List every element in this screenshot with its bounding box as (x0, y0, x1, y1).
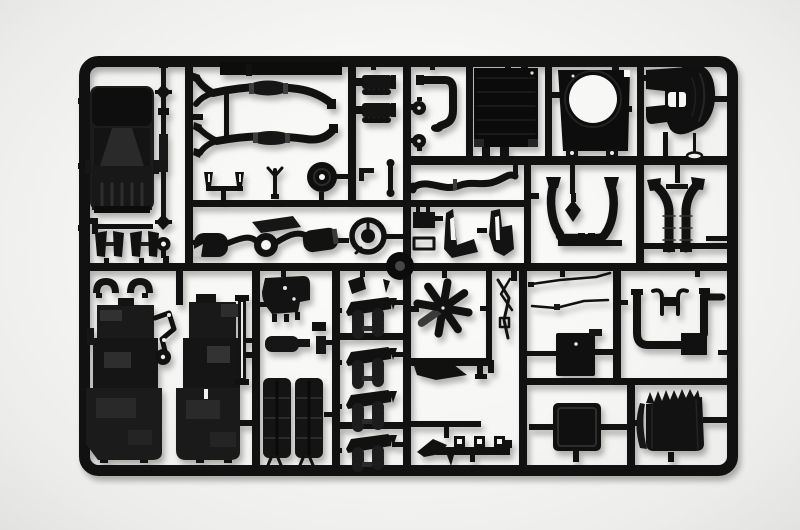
dogbone-end (387, 159, 395, 167)
hub-flange-lug (410, 105, 415, 110)
air-cleaner-horn (637, 403, 648, 449)
sprue-bar-v1 (185, 66, 193, 268)
part-dogbone-link (388, 164, 393, 192)
sprue-bar-v9 (252, 271, 260, 467)
muffler-pipe (228, 238, 255, 243)
part-small-block (312, 322, 326, 331)
stub (706, 236, 727, 241)
stack-cap (663, 246, 675, 252)
link-rod-foot (271, 194, 279, 199)
part-pipe-stub (488, 360, 494, 373)
cab-tab (153, 160, 159, 174)
stub (176, 271, 183, 305)
stub (193, 114, 203, 120)
part-linkage-rod (532, 273, 610, 284)
muffler-band (253, 133, 258, 143)
wedge-connector (105, 242, 114, 246)
sprue-runner-rail (411, 421, 481, 427)
stack-left-flare (647, 178, 661, 191)
stub (500, 147, 509, 158)
engine-cover-slot-divider (676, 92, 679, 107)
stub (79, 348, 87, 354)
stub (139, 258, 144, 264)
snake-pipe-clamp (453, 179, 457, 190)
stub (435, 216, 443, 221)
sprue-runner-a1 (340, 333, 403, 340)
part-mount-wedge (113, 231, 124, 257)
engine-mount-conn (362, 462, 372, 467)
stub (531, 193, 539, 199)
spearhead-stem (571, 193, 576, 202)
part-spearhead (565, 200, 581, 222)
sprue-group (78, 60, 733, 471)
thin-strip-cap (235, 379, 249, 385)
stub (573, 451, 579, 462)
engine-mount-conn (362, 419, 372, 424)
driveshaft-mid (159, 134, 168, 172)
compressor-pin (272, 314, 277, 322)
hub-flange-lug (410, 138, 415, 143)
stub (336, 448, 342, 453)
stub (552, 92, 560, 98)
part-t-fitting (664, 297, 676, 306)
exhaust1-flange (327, 99, 336, 109)
sprue-bar-v8 (636, 165, 644, 268)
finned-cylinder-nub (355, 106, 363, 114)
engine-detail (100, 310, 122, 321)
stub (371, 62, 376, 70)
wedge-connector (140, 242, 149, 246)
part-spring-clip (93, 278, 119, 293)
stub (601, 424, 627, 430)
photo-canvas (0, 0, 800, 530)
hook-rail-tooth-hole (477, 439, 482, 444)
exhaust1-fork-low (196, 93, 213, 104)
stub (336, 404, 342, 409)
engine-detail (186, 400, 220, 419)
stack-bridge (666, 184, 688, 189)
compressor-pin (284, 314, 289, 322)
stub (246, 338, 252, 343)
part-step-bracket (489, 209, 514, 256)
sprue-bar-v3 (348, 66, 356, 207)
part-air-cleaner (646, 397, 704, 451)
exhaust-runner (224, 92, 229, 138)
sprue-bar-h6 (519, 378, 732, 385)
sprue-bar-v11 (486, 271, 492, 360)
stub (324, 412, 332, 417)
finned-cylinder-nub (355, 78, 363, 86)
wheel-rim-hub (361, 229, 375, 243)
stub (338, 238, 349, 243)
wedge-runner (95, 224, 153, 229)
part-spike-small (383, 279, 390, 293)
muffler-band (249, 83, 254, 94)
part-radiator (474, 68, 538, 147)
part-coolant-hose (423, 80, 453, 126)
stub (570, 165, 575, 194)
coolant-hose-tip (431, 124, 443, 132)
part-step-bracket (444, 209, 478, 258)
engine-cover-pin (693, 133, 696, 153)
pipe-stub-foot (475, 374, 487, 379)
fan-blade (444, 282, 448, 303)
t-fitting-pin (660, 299, 664, 303)
engine-detail (207, 346, 230, 363)
part-mount-wedge (148, 231, 159, 257)
stub (336, 360, 342, 365)
stub (621, 300, 628, 305)
stub (407, 184, 414, 189)
part-fuel-tank (553, 403, 601, 451)
stub (513, 165, 518, 175)
valve-box-pin (416, 206, 420, 212)
stub (529, 424, 553, 430)
stub (612, 60, 619, 70)
stub (104, 258, 109, 264)
part-truck-cab-roof (92, 88, 152, 126)
engine-lug (87, 328, 94, 345)
part-heater-connector-box (681, 333, 707, 355)
part-linkage-rod (532, 300, 608, 308)
sprue-bar-v12 (519, 271, 527, 467)
sprue-bar-h1 (403, 156, 733, 165)
engine-mount-conn (362, 326, 372, 331)
hub-flange-lug (417, 97, 422, 101)
stub (675, 165, 680, 183)
stub (714, 96, 728, 102)
thin-strip-slot (241, 302, 243, 378)
stub (668, 452, 674, 462)
engine-detail (104, 352, 131, 368)
hub-flange-dot (417, 106, 421, 110)
stub (240, 420, 252, 426)
part-wishbone (206, 186, 243, 191)
sprue-bar-v5 (545, 66, 552, 161)
radiator-pinhole (530, 71, 533, 74)
part-small-bracket (92, 218, 98, 234)
stub (663, 132, 668, 160)
bellcrank-hole (167, 313, 171, 317)
radiator-corner (528, 139, 538, 147)
damper-hole (319, 174, 325, 180)
muffler-band (283, 83, 288, 94)
stub (78, 98, 91, 104)
sprue-bar-v10 (332, 271, 340, 467)
engine-lug (221, 304, 238, 317)
valve-box-pin (426, 206, 430, 212)
u-hose-cap (578, 233, 585, 243)
sprue-bar-h2 (185, 200, 524, 207)
heater-pipe-flange (699, 288, 710, 294)
fan-blade (439, 313, 443, 334)
stub (335, 174, 349, 179)
damper-stub (319, 192, 324, 200)
sprue-bar-v13 (613, 271, 621, 383)
stub (480, 306, 486, 311)
radiator-corner (474, 139, 484, 147)
battery-box-hole (574, 342, 578, 346)
part-snake-pipe (414, 175, 515, 188)
engine-knob (196, 294, 216, 303)
sprue-bar-v14 (627, 385, 635, 471)
fan-blade (417, 304, 438, 308)
stub (521, 60, 528, 69)
clip-foot (96, 293, 102, 298)
part-oil-filter (265, 336, 299, 352)
part-angle-bracket (359, 168, 374, 181)
wishbone-cup-slit (239, 174, 241, 182)
stub (79, 408, 87, 414)
u-hose-right-flare (604, 177, 619, 188)
battery-box-flange (589, 329, 602, 336)
stack-right-flare (691, 177, 705, 190)
hub-flange-dot (417, 139, 421, 143)
engine-cover-pin-foot (687, 153, 702, 160)
sprue-photo (0, 0, 800, 530)
cap-disc-hole (161, 355, 165, 359)
stub (186, 240, 195, 245)
u-hose-left-flare (546, 177, 561, 188)
part-truck-cab-lip (94, 206, 150, 213)
fan-hub-hole (441, 306, 444, 309)
sprue-tag-plate (220, 62, 342, 75)
exhaust2-fork-low (200, 141, 217, 153)
engine-knob (118, 298, 134, 306)
fan-blade (448, 309, 469, 313)
stub (159, 60, 168, 68)
heater-pipe-flange (631, 289, 643, 295)
fan-blade (422, 311, 439, 323)
cab-tab (85, 160, 91, 174)
part-pipe-stub (477, 360, 483, 376)
stub (637, 75, 647, 81)
dogbone-end (387, 189, 395, 197)
part-frame-loop (414, 238, 434, 249)
hook-rail-tooth-hole (457, 439, 462, 444)
linkage-rod-kink (554, 304, 560, 310)
stub (385, 234, 404, 239)
driveshaft-eye-hole (161, 242, 166, 247)
hook-rail-end (505, 440, 512, 448)
hook-rail-spike (447, 455, 454, 466)
part-spring-clip (127, 278, 153, 293)
stub (281, 271, 286, 277)
stub (511, 271, 517, 281)
stub (430, 62, 435, 70)
stack-cap (680, 246, 692, 252)
thin-strip-cap (235, 295, 249, 301)
coolant-hose-flare (416, 75, 424, 85)
stub (482, 147, 490, 158)
fan-shroud-tab-hole (570, 151, 574, 155)
fan-shroud-tab-hole (610, 151, 614, 155)
part-heat-shield (252, 216, 301, 233)
driveshaft-ujoint-bar (155, 90, 172, 94)
fan-blade (446, 312, 458, 329)
u-hose-cap (588, 233, 595, 243)
stub (360, 271, 365, 277)
part-mount-wedge-small (348, 276, 366, 294)
part-exhaust-stack-left (656, 186, 669, 248)
part-valve-box (413, 212, 435, 228)
stub (505, 61, 511, 69)
ring-gear-hole (261, 240, 271, 250)
sprue-bar-v4 (466, 66, 473, 161)
part-small-block (316, 336, 326, 354)
oil-filter-elbow (298, 339, 310, 347)
engine-detail (210, 432, 236, 447)
driveshaft-ujoint-bar (155, 220, 172, 224)
stub (470, 455, 475, 462)
stub (336, 308, 342, 313)
linkage-rod-end (528, 282, 534, 287)
stub (560, 271, 565, 277)
fan-shroud-notch (624, 70, 630, 77)
fan-blade (447, 293, 464, 305)
finned-cylinder-flange (391, 75, 396, 89)
hub-flange-lug (417, 147, 422, 151)
clip-foot (142, 293, 148, 298)
engine-detail (96, 398, 136, 418)
stub (246, 64, 252, 76)
wishbone-stub (221, 191, 226, 200)
part-battery-box (556, 333, 595, 376)
muffler-band (285, 133, 290, 143)
compressor-hole (292, 297, 295, 300)
stub (527, 351, 557, 356)
muffler-pipe (277, 234, 305, 242)
fan-shroud-hole (569, 75, 617, 123)
engine-slit (204, 389, 208, 399)
bellcrank-hole (162, 338, 166, 342)
compressor-hole (283, 286, 287, 290)
driveshaft-collar (158, 108, 169, 115)
part-compressor (262, 276, 310, 314)
hook-rail-tooth-hole (497, 439, 502, 444)
compressor-pin (295, 312, 300, 320)
pulley-donut-hole (395, 261, 405, 271)
stub (695, 271, 700, 277)
part-finned-cylinder (362, 103, 392, 117)
stub (477, 228, 487, 233)
stub (703, 417, 727, 423)
engine-mount-conn (362, 376, 372, 381)
stub (444, 427, 449, 438)
stub (718, 350, 727, 355)
engine-detail (128, 430, 152, 445)
stub (78, 225, 90, 231)
fan-blade (428, 287, 440, 304)
sprue-bar-v7 (524, 165, 531, 268)
exhaust2-flange (329, 124, 338, 133)
part-hook-rail (436, 447, 510, 455)
t-fitting-pin (676, 299, 680, 303)
finned-cylinder-flange (391, 103, 396, 117)
wishbone-cup-slit (208, 174, 210, 182)
driveshaft-tip (161, 250, 166, 258)
stub (442, 271, 447, 278)
part-u-hose-right (588, 186, 614, 238)
fan-shroud-pinhole (572, 75, 575, 78)
part-finned-cylinder (362, 75, 392, 89)
